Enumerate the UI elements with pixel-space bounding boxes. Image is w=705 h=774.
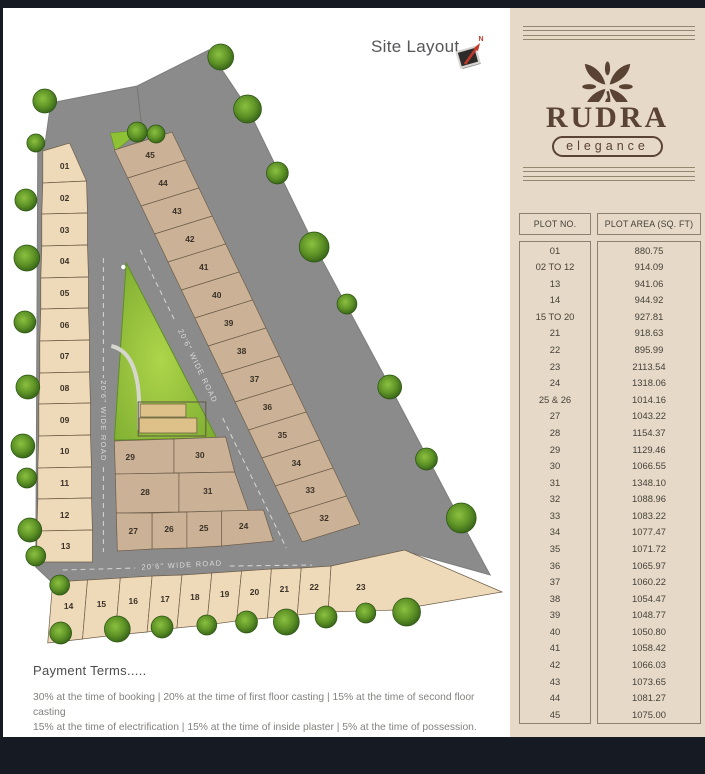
plot-no-cell: 25 & 26 bbox=[539, 395, 571, 404]
tree-icon bbox=[11, 434, 35, 458]
plot-number-14: 14 bbox=[64, 601, 74, 611]
plot-number-35: 35 bbox=[278, 430, 288, 440]
plot-number-36: 36 bbox=[263, 402, 273, 412]
plot-no-cell: 13 bbox=[550, 279, 560, 288]
plot-no-cell: 22 bbox=[550, 345, 560, 354]
brand-panel: RUDRA elegance PLOT NO. PLOT AREA (SQ. F… bbox=[510, 8, 705, 737]
tree-icon bbox=[26, 546, 46, 566]
plot-area-cell: 1154.37 bbox=[632, 428, 665, 437]
tree-icon bbox=[337, 294, 357, 314]
plot-number-27: 27 bbox=[129, 526, 139, 536]
plot-no-cell: 34 bbox=[550, 527, 560, 536]
plot-no-cell: 41 bbox=[550, 643, 560, 652]
plot-number-44: 44 bbox=[158, 178, 168, 188]
plot-number-17: 17 bbox=[160, 594, 170, 604]
brand-tagline-badge: elegance bbox=[510, 136, 705, 157]
park-apex-marker bbox=[121, 265, 125, 269]
tree-icon bbox=[18, 518, 42, 542]
plot-area-cell: 2113.54 bbox=[632, 362, 665, 371]
plot-number-29: 29 bbox=[126, 452, 136, 462]
plot-area-cell: 1050.80 bbox=[632, 627, 666, 636]
decorative-rule bbox=[523, 167, 695, 172]
tree-icon bbox=[147, 125, 165, 143]
plot-no-cell: 36 bbox=[550, 561, 560, 570]
brand-name: RUDRA bbox=[510, 101, 705, 135]
plot-number-07: 07 bbox=[60, 351, 70, 361]
tree-icon bbox=[33, 89, 57, 113]
table-column-plot-area: 880.75914.09941.06944.92927.81918.63895.… bbox=[597, 241, 701, 724]
plot-number-24: 24 bbox=[239, 521, 249, 531]
payment-terms: Payment Terms..... 30% at the time of bo… bbox=[33, 663, 498, 735]
plot-number-30: 30 bbox=[195, 450, 205, 460]
plot-no-cell: 38 bbox=[550, 594, 560, 603]
plot-area-cell: 1065.97 bbox=[632, 561, 666, 570]
plot-number-02: 02 bbox=[60, 193, 70, 203]
tree-icon bbox=[17, 468, 37, 488]
table-header-plot-no: PLOT NO. bbox=[519, 213, 591, 235]
plot-area-cell: 1054.47 bbox=[632, 594, 666, 603]
plot-no-cell: 28 bbox=[550, 428, 560, 437]
plot-number-38: 38 bbox=[237, 346, 247, 356]
plot-number-01: 01 bbox=[60, 161, 70, 171]
plot-area-cell: 1066.03 bbox=[632, 660, 666, 669]
plot-area-cell: 1071.72 bbox=[632, 544, 666, 553]
plot-area-cell: 918.63 bbox=[635, 328, 664, 337]
tree-icon bbox=[127, 122, 147, 142]
plot-number-26: 26 bbox=[164, 524, 174, 534]
plot-number-39: 39 bbox=[224, 318, 234, 328]
plot-area-cell: 1058.42 bbox=[632, 643, 666, 652]
tree-icon bbox=[315, 606, 337, 628]
plot-area-cell: 1318.06 bbox=[632, 378, 666, 387]
plot-number-10: 10 bbox=[60, 446, 70, 456]
plot-area-cell: 880.75 bbox=[635, 246, 664, 255]
plot-no-cell: 35 bbox=[550, 544, 560, 553]
tree-icon bbox=[208, 44, 234, 70]
plot-area-cell: 1083.22 bbox=[632, 511, 666, 520]
plot-area-cell: 927.81 bbox=[635, 312, 664, 321]
plot-number-23: 23 bbox=[356, 582, 366, 592]
plot-number-20: 20 bbox=[250, 587, 260, 597]
table-header-plot-area: PLOT AREA (SQ. FT) bbox=[597, 213, 701, 235]
plot-number-34: 34 bbox=[292, 458, 302, 468]
plot-number-19: 19 bbox=[220, 589, 230, 599]
plot-shape-29 bbox=[114, 439, 174, 474]
letterbox-top bbox=[0, 0, 705, 8]
plot-area-cell: 914.09 bbox=[635, 262, 664, 271]
tree-icon bbox=[356, 603, 376, 623]
plot-number-43: 43 bbox=[172, 206, 182, 216]
plot-number-21: 21 bbox=[280, 584, 290, 594]
tree-icon bbox=[104, 616, 130, 642]
plot-area-cell: 1014.16 bbox=[632, 395, 666, 404]
plot-number-18: 18 bbox=[190, 592, 200, 602]
plot-no-cell: 43 bbox=[550, 677, 560, 686]
plot-number-42: 42 bbox=[185, 234, 195, 244]
plot-number-13: 13 bbox=[61, 541, 71, 551]
tree-icon bbox=[27, 134, 45, 152]
payment-terms-heading: Payment Terms..... bbox=[33, 663, 498, 678]
site-plan-map: 20'6" WIDE ROAD 20'6" WIDE ROAD 20'6" WI… bbox=[3, 8, 510, 737]
plot-no-cell: 27 bbox=[550, 411, 560, 420]
plot-no-cell: 44 bbox=[550, 693, 560, 702]
brand-emblem-icon bbox=[570, 50, 645, 102]
decorative-rule bbox=[523, 35, 695, 40]
plot-number-22: 22 bbox=[309, 582, 319, 592]
plot-area-cell: 1073.65 bbox=[632, 677, 666, 686]
plot-no-cell: 21 bbox=[550, 328, 560, 337]
tree-icon bbox=[446, 503, 476, 533]
page-title: Site Layout bbox=[371, 37, 459, 57]
brand-tagline-text: elegance bbox=[552, 136, 663, 157]
plot-no-cell: 14 bbox=[550, 295, 560, 304]
plot-number-06: 06 bbox=[60, 320, 70, 330]
plot-number-25: 25 bbox=[199, 523, 209, 533]
tree-icon bbox=[50, 622, 72, 644]
plot-number-04: 04 bbox=[60, 256, 70, 266]
plot-no-cell: 33 bbox=[550, 511, 560, 520]
plot-no-cell: 39 bbox=[550, 610, 560, 619]
tree-icon bbox=[14, 245, 40, 271]
plot-number-33: 33 bbox=[305, 485, 315, 495]
plot-number-28: 28 bbox=[140, 487, 150, 497]
tree-icon bbox=[266, 162, 288, 184]
payment-terms-line-1: 30% at the time of booking | 20% at the … bbox=[33, 690, 498, 720]
site-layout-poster: Site Layout N bbox=[0, 0, 705, 774]
plot-area-cell: 941.06 bbox=[635, 279, 664, 288]
plot-area-cell: 1077.47 bbox=[632, 527, 666, 536]
plot-no-cell: 30 bbox=[550, 461, 560, 470]
plot-number-08: 08 bbox=[60, 383, 70, 393]
tree-icon bbox=[151, 616, 173, 638]
plot-no-cell: 45 bbox=[550, 710, 560, 719]
plot-number-40: 40 bbox=[212, 290, 222, 300]
plot-area-cell: 944.92 bbox=[635, 295, 664, 304]
plot-number-31: 31 bbox=[203, 486, 213, 496]
plot-area-cell: 1060.22 bbox=[632, 577, 666, 586]
decorative-rule bbox=[523, 26, 695, 31]
plot-number-45: 45 bbox=[145, 150, 155, 160]
tree-icon bbox=[416, 448, 438, 470]
tree-icon bbox=[16, 375, 40, 399]
plot-number-11: 11 bbox=[60, 478, 69, 488]
letterbox-bottom bbox=[0, 737, 705, 774]
tree-icon bbox=[393, 598, 421, 626]
plot-no-cell: 40 bbox=[550, 627, 560, 636]
plot-area-cell: 1129.46 bbox=[632, 445, 665, 454]
tree-icon bbox=[15, 189, 37, 211]
plot-no-cell: 37 bbox=[550, 577, 560, 586]
plot-no-cell: 23 bbox=[550, 362, 560, 371]
plot-no-cell: 42 bbox=[550, 660, 560, 669]
compass-icon: N bbox=[453, 33, 489, 73]
tree-icon bbox=[299, 232, 329, 262]
tree-icon bbox=[197, 615, 217, 635]
table-column-plot-no: 0102 TO 12131415 TO 202122232425 & 26272… bbox=[519, 241, 591, 724]
plot-area-cell: 1088.96 bbox=[632, 494, 666, 503]
decorative-rule bbox=[523, 176, 695, 181]
plot-number-37: 37 bbox=[250, 374, 260, 384]
site-plan-area: Site Layout N bbox=[3, 8, 510, 737]
plot-no-cell: 15 TO 20 bbox=[536, 312, 575, 321]
plot-number-09: 09 bbox=[60, 415, 70, 425]
plot-no-cell: 24 bbox=[550, 378, 560, 387]
tree-icon bbox=[236, 611, 258, 633]
tree-icon bbox=[234, 95, 262, 123]
plot-area-cell: 1075.00 bbox=[632, 710, 666, 719]
road-label-left: 20'6" WIDE ROAD bbox=[99, 380, 108, 461]
plot-number-15: 15 bbox=[97, 599, 107, 609]
payment-terms-line-2: 15% at the time of electrification | 15%… bbox=[33, 720, 498, 735]
plot-no-cell: 32 bbox=[550, 494, 560, 503]
plot-area-cell: 1348.10 bbox=[632, 478, 666, 487]
plot-no-cell: 29 bbox=[550, 445, 560, 454]
plot-number-41: 41 bbox=[199, 262, 209, 272]
plot-number-32: 32 bbox=[319, 513, 329, 523]
plot-number-16: 16 bbox=[129, 596, 139, 606]
plot-area-cell: 1066.55 bbox=[632, 461, 666, 470]
plot-area-cell: 895.99 bbox=[635, 345, 664, 354]
plot-no-cell: 01 bbox=[550, 246, 560, 255]
plot-area-cell: 1043.22 bbox=[632, 411, 666, 420]
tree-icon bbox=[273, 609, 299, 635]
plot-no-cell: 31 bbox=[550, 478, 560, 487]
tree-icon bbox=[378, 375, 402, 399]
plot-no-cell: 02 TO 12 bbox=[536, 262, 575, 271]
plot-area-cell: 1048.77 bbox=[632, 610, 666, 619]
plot-number-03: 03 bbox=[60, 225, 70, 235]
tree-icon bbox=[14, 311, 36, 333]
tree-icon bbox=[50, 575, 70, 595]
plot-number-05: 05 bbox=[60, 288, 70, 298]
plot-number-12: 12 bbox=[60, 510, 70, 520]
compass-n-label: N bbox=[478, 36, 483, 43]
plot-area-cell: 1081.27 bbox=[632, 693, 666, 702]
